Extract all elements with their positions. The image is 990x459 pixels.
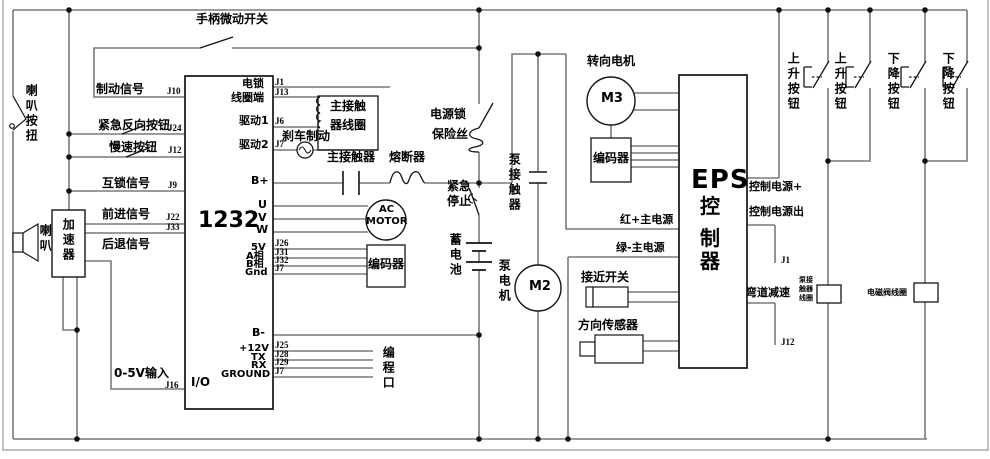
key-fuse-label: 保险丝 xyxy=(432,128,468,141)
eps-controller-box xyxy=(679,75,747,368)
emergency-reverse-label: 紧急反向按钮 xyxy=(98,119,170,132)
pump-coil-label-1: 泵接 xyxy=(799,276,813,285)
key-lock-label: 电源锁 xyxy=(430,108,466,121)
main-fuse-icon xyxy=(390,172,425,184)
proximity-switch-body xyxy=(593,287,628,307)
horn-label: 喇叭 xyxy=(38,224,51,254)
eps-title-c3: 器 xyxy=(700,250,720,272)
direction-sensor-body xyxy=(595,335,643,363)
down-button-2-label: 下降按钮 xyxy=(941,52,954,112)
solenoid-coil-label: 电磁阀线圈 xyxy=(867,289,907,298)
brake-coil-icon xyxy=(297,142,313,158)
w-label: W xyxy=(256,224,268,236)
brake-coil-label: 刹车制动 xyxy=(282,130,330,143)
direction-sensor-tip xyxy=(580,342,595,356)
horn-button-label: 喇叭按扭 xyxy=(24,84,37,144)
interlock-signal-label: 互锁信号 xyxy=(102,177,150,190)
slow-button-label: 慢速按钮 xyxy=(109,141,157,154)
backward-signal-label: 后退信号 xyxy=(102,238,150,251)
steering-motor-label: 转向电机 xyxy=(587,55,635,68)
lock-coil-label-1: 电锁 xyxy=(242,78,264,90)
battery-label: 蓄电池 xyxy=(448,233,461,278)
accelerator-label: 加速器 xyxy=(61,218,74,263)
pump-contactor-coil-box xyxy=(817,285,841,303)
pin-label-j24: J24 xyxy=(168,124,182,134)
controller-model: 1232 xyxy=(198,209,259,233)
proximity-switch-label: 接近开关 xyxy=(581,271,629,284)
pump-coil-label-2: 触器 xyxy=(799,285,813,294)
eps-title-c2: 制 xyxy=(700,227,720,249)
pump-motor-label: 泵电机 xyxy=(497,259,510,304)
steering-encoder-label: 编码器 xyxy=(593,152,629,165)
pump-motor-m2: M2 xyxy=(529,280,551,294)
drive1-label: 驱动1 xyxy=(239,115,269,127)
main-fuse-label: 熔断器 xyxy=(389,151,425,164)
ground-label: GROUND xyxy=(221,369,270,380)
main-contactor-label: 主接触器 xyxy=(327,151,375,164)
b-minus-label: B- xyxy=(252,327,265,339)
pin-label-j33: J33 xyxy=(166,223,180,233)
handle-micro-switch-label: 手柄微动开关 xyxy=(196,13,268,26)
motor-encoder-label: 编码器 xyxy=(368,258,404,271)
green-main-power-label: 绿-主电源 xyxy=(616,242,665,254)
pin-label-j16: J16 xyxy=(165,381,179,391)
main-contactor-contact-icon xyxy=(343,171,359,195)
direction-sensor-label: 方向传感器 xyxy=(578,319,638,332)
pump-contactor-contact-icon xyxy=(529,172,547,183)
eps-pin-j1: J1 xyxy=(781,256,790,266)
pin-label-j6: J6 xyxy=(275,117,284,127)
lock-coil-label-2: 线圈端 xyxy=(231,92,264,104)
up-button-2-label: 上升按钮 xyxy=(833,52,846,112)
pin-label-j7-enc: J7 xyxy=(275,264,284,274)
pin-label-j7-io: J7 xyxy=(275,367,284,377)
pin-label-j10: J10 xyxy=(167,87,181,97)
brake-signal-label: 制动信号 xyxy=(96,83,144,96)
estop-label-1: 紧急 xyxy=(447,180,471,193)
horn-speaker-icon xyxy=(13,224,38,261)
eps-pin-j12: J12 xyxy=(781,338,795,348)
ac-motor-label-1: AC xyxy=(379,204,394,215)
gnd-label: Gnd xyxy=(245,267,268,278)
solenoid-valve-coil-box xyxy=(914,283,938,302)
u-label: U xyxy=(258,199,267,211)
pin-label-j12: J12 xyxy=(168,146,182,156)
red-main-power-label: 红+主电源 xyxy=(620,214,673,226)
ac-motor-label-2: MOTOR xyxy=(366,216,407,227)
up-button-1-label: 上升按钮 xyxy=(786,52,799,112)
control-power-in-label: 控制电源+ xyxy=(749,181,802,193)
proximity-switch-tip xyxy=(586,287,593,307)
eps-title-c1: 控 xyxy=(700,195,720,217)
pump-contactor-label: 泵接触器 xyxy=(507,153,520,213)
drive2-label: 驱动2 xyxy=(239,139,269,151)
forward-signal-label: 前进信号 xyxy=(102,208,150,221)
key-fuse-icon xyxy=(469,128,483,152)
controller-io-label: I/O xyxy=(191,376,210,389)
analog-input-label: 0-5V输入 xyxy=(114,367,169,380)
programming-port-label: 编程口 xyxy=(381,346,394,391)
down-button-1-label: 下降按钮 xyxy=(886,52,899,112)
eps-title: EPS xyxy=(691,166,750,195)
curve-slowdown-label: 弯道减速 xyxy=(746,287,790,299)
steering-motor-m3: M3 xyxy=(601,92,623,106)
estop-label-2: 停止 xyxy=(447,195,471,208)
main-contactor-coil-label-2: 器线圈 xyxy=(330,119,366,132)
control-power-out-label: 控制电源出 xyxy=(749,206,804,218)
main-contactor-coil-label-1: 主接触 xyxy=(330,100,366,113)
wiring-diagram: 手柄微动开关 喇叭按扭 喇叭 加速器 制动信号 紧急反向按钮 慢速按钮 互锁信号… xyxy=(0,0,990,459)
pin-label-j9: J9 xyxy=(168,181,177,191)
pin-label-j13: J13 xyxy=(275,88,289,98)
b-plus-label: B+ xyxy=(251,175,269,187)
pump-coil-label-3: 线圈 xyxy=(799,294,813,303)
